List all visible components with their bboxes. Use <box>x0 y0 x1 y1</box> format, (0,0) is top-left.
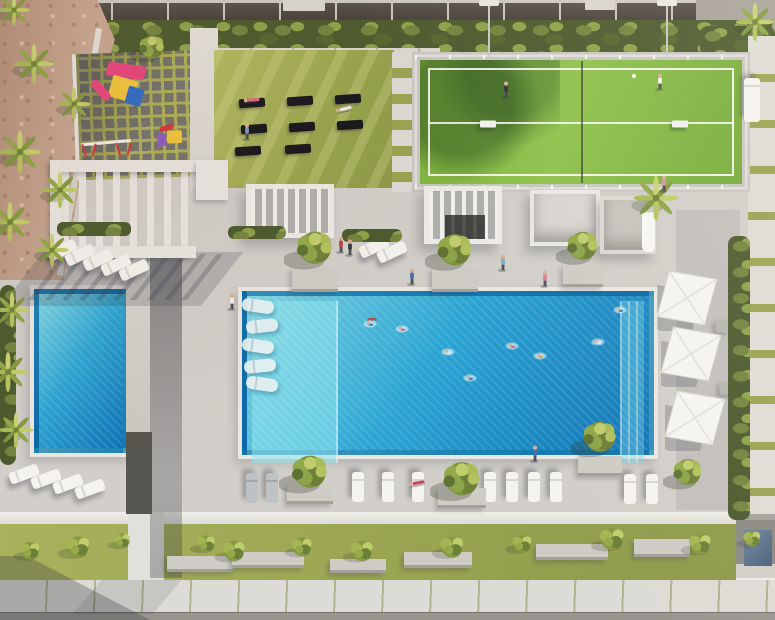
shrub <box>105 523 139 557</box>
slide-arch <box>156 133 167 147</box>
flood-light <box>657 0 677 58</box>
flood-light <box>479 0 499 58</box>
palm <box>731 0 775 46</box>
lounger-gray <box>246 473 258 503</box>
person <box>655 73 665 91</box>
mini-slide <box>155 123 184 148</box>
secondary-pool <box>30 285 132 457</box>
slide-ramp <box>167 130 182 144</box>
person <box>345 239 355 257</box>
palm <box>0 197 35 247</box>
swimmer <box>613 305 627 315</box>
canopy <box>556 220 610 274</box>
person <box>540 270 550 288</box>
light-head <box>657 0 677 6</box>
glass-posts <box>415 55 747 59</box>
palm <box>9 39 59 89</box>
shrub <box>502 523 542 563</box>
shrub <box>54 522 102 570</box>
lounger <box>744 78 760 122</box>
paver-grass-strip <box>392 52 412 192</box>
bird <box>367 316 377 324</box>
aerial-render-scene <box>0 0 775 620</box>
canopy <box>571 409 629 467</box>
person <box>498 254 508 272</box>
palm <box>628 170 684 226</box>
utility-box <box>585 0 615 10</box>
person <box>407 268 417 286</box>
palm <box>53 83 95 125</box>
mat <box>289 122 316 133</box>
wall-shadow <box>150 258 182 578</box>
bench <box>672 121 688 128</box>
lounger <box>646 474 658 504</box>
mat <box>287 96 314 107</box>
hedge-planter <box>228 226 286 239</box>
bench <box>480 121 496 128</box>
lounger <box>624 474 636 504</box>
shrub <box>211 527 257 573</box>
shrub <box>339 527 385 573</box>
lounger <box>382 472 394 502</box>
mat <box>337 120 364 131</box>
pergola-block <box>196 160 228 200</box>
lounger <box>550 472 562 502</box>
lounger <box>528 472 540 502</box>
canopy <box>425 221 485 281</box>
palm <box>0 408 38 452</box>
pool-water <box>34 289 128 453</box>
swimmer <box>533 351 547 361</box>
canopy <box>663 448 713 498</box>
umbrella <box>665 389 727 451</box>
shrub <box>10 530 50 570</box>
water-sparkle <box>39 294 123 448</box>
swimmer <box>395 324 409 334</box>
canopy <box>130 26 174 70</box>
mat <box>235 146 262 157</box>
ball <box>632 74 636 78</box>
person <box>501 81 511 99</box>
divider-wall <box>126 432 152 514</box>
palm <box>0 288 34 332</box>
hedge-row <box>728 236 750 520</box>
lounger-gray <box>266 473 278 503</box>
swimmer <box>591 337 605 347</box>
person <box>243 95 262 104</box>
umbrella <box>661 325 723 387</box>
palm <box>0 0 34 30</box>
playset-panel <box>124 85 144 107</box>
light-streaks <box>214 50 394 188</box>
padel-court <box>412 52 750 192</box>
canopy <box>279 442 341 504</box>
shrub <box>428 522 476 570</box>
person <box>242 123 252 141</box>
person <box>659 175 669 193</box>
shrub <box>281 525 323 567</box>
canopy <box>430 448 494 512</box>
glass-wall <box>415 55 747 189</box>
swing-bar <box>81 139 131 146</box>
shrub <box>734 520 770 556</box>
umbrella <box>657 269 719 331</box>
swimmer <box>505 341 519 351</box>
light-pole <box>488 4 490 58</box>
swimmer <box>463 373 477 383</box>
person <box>227 293 237 311</box>
swimmer <box>441 347 455 357</box>
shrub <box>677 520 723 566</box>
lounger <box>506 472 518 502</box>
light-head <box>479 0 499 6</box>
lounger <box>352 472 364 502</box>
yoga-lawn <box>214 50 394 188</box>
shrub <box>587 513 637 563</box>
palm <box>0 347 33 397</box>
person <box>530 445 540 463</box>
mat <box>285 144 312 155</box>
palm <box>31 229 73 271</box>
light-pole <box>666 4 668 58</box>
utility-box <box>283 0 325 11</box>
palm <box>37 167 83 213</box>
